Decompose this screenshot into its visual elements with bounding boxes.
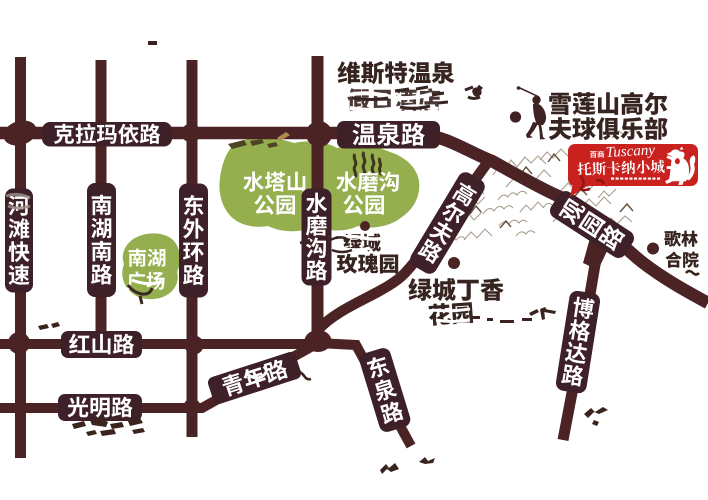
svg-text:Tuscany: Tuscany <box>605 142 655 161</box>
